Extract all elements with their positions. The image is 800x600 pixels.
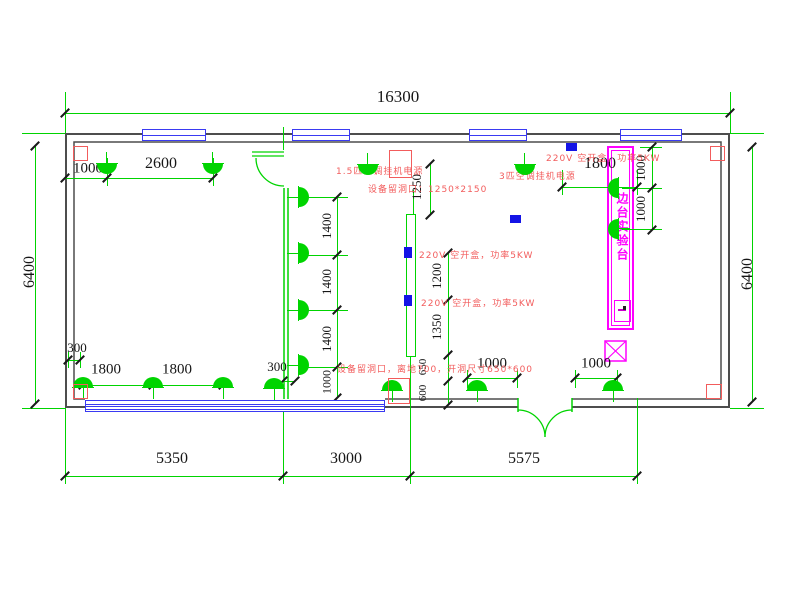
power-box-icon	[404, 247, 412, 258]
dim-label: 1350	[429, 314, 445, 340]
dim-label: 3000	[330, 450, 362, 468]
dim-label: 16300	[377, 87, 420, 107]
window-mullion	[293, 135, 349, 136]
lamp-stem	[153, 387, 154, 399]
red-annotation: 220V 空开盒，功率5KW	[546, 151, 660, 164]
lamp-dome	[299, 355, 309, 375]
faucet-knob	[623, 306, 626, 310]
lamp-icon	[356, 153, 380, 177]
window-mullion	[86, 406, 384, 407]
lamp-icon	[211, 375, 235, 399]
red-annotation: 设备留洞口：1250*2150	[368, 182, 487, 195]
lamp-dome	[608, 178, 618, 198]
lamp-bar	[602, 390, 624, 391]
dim-label: 600	[417, 385, 429, 402]
door-swing-arc	[518, 410, 545, 437]
lamp-bar	[142, 387, 164, 388]
extension-line	[410, 357, 411, 484]
power-box-icon	[404, 295, 412, 306]
door-swing-arc	[256, 158, 284, 186]
dim-label: 1000	[633, 196, 649, 222]
lamp-icon	[95, 152, 119, 176]
window-icon	[620, 129, 682, 141]
lamp-icon	[287, 185, 311, 209]
lamp-dome	[603, 380, 623, 390]
green-bench-outline	[406, 214, 416, 357]
window-mullion	[86, 409, 384, 410]
lamp-stem	[274, 388, 275, 400]
red-annotation: 220V 空开盒，功率5KW	[421, 296, 535, 309]
window-icon	[292, 129, 350, 141]
lamp-stem	[477, 390, 478, 402]
extension-line	[22, 408, 65, 409]
door-opening	[518, 397, 572, 409]
dim-label: 1000	[581, 356, 611, 373]
lamp-dome	[515, 165, 535, 175]
lamp-bar	[212, 387, 234, 388]
dim-line	[65, 178, 213, 179]
extension-line	[730, 133, 764, 134]
dim-label: 5350	[156, 450, 188, 468]
dim-label: 1400	[319, 269, 335, 295]
extension-line	[730, 408, 764, 409]
lamp-stem	[618, 187, 630, 188]
lamp-dome	[299, 300, 309, 320]
red-annotation: 3匹空调挂机电源	[499, 169, 576, 182]
dim-label: 5575	[508, 450, 540, 468]
dim-label: 1400	[319, 326, 335, 352]
dim-label: 1000	[320, 370, 335, 394]
window-mullion	[143, 135, 205, 136]
dim-label: 300	[267, 359, 287, 375]
lamp-stem	[613, 390, 614, 402]
window-icon	[142, 129, 206, 141]
red-annotation: 设备留洞口，离地700，开洞尺寸650*600	[337, 362, 533, 375]
door-swing-arc	[545, 410, 572, 437]
dim-line	[65, 113, 730, 114]
lamp-stem	[618, 228, 630, 229]
lamp-dome	[213, 377, 233, 387]
dim-label: 1800	[162, 362, 192, 379]
red-outline-box	[710, 146, 725, 161]
dim-line	[65, 476, 637, 477]
lamp-dome	[608, 219, 618, 239]
window-icon	[85, 400, 385, 412]
lamp-icon	[262, 376, 286, 400]
dim-label: 1200	[429, 263, 445, 289]
lamp-dome	[299, 187, 309, 207]
lamp-dome	[467, 380, 487, 390]
sink-symbol	[614, 300, 631, 322]
window-mullion	[470, 135, 526, 136]
dim-label: 1800	[91, 362, 121, 379]
lamp-icon	[606, 176, 630, 200]
extension-line	[637, 398, 638, 484]
red-outline-box	[706, 384, 722, 399]
lamp-dome	[97, 164, 117, 174]
lamp-bar	[466, 390, 488, 391]
lamp-icon	[601, 378, 625, 402]
dim-label: 1400	[319, 213, 335, 239]
lamp-bar	[263, 388, 285, 389]
lamp-icon	[287, 353, 311, 377]
power-box-icon	[566, 143, 577, 151]
lamp-icon	[606, 217, 630, 241]
lamp-stem	[223, 387, 224, 399]
extension-line	[283, 400, 284, 484]
red-outline-box	[73, 384, 88, 399]
lamp-bar	[618, 218, 619, 240]
red-annotation: 220V 空开盒，功率5KW	[419, 248, 533, 261]
lamp-dome	[358, 165, 378, 175]
lamp-dome	[143, 377, 163, 387]
extension-line	[283, 127, 284, 150]
lamp-icon	[287, 241, 311, 265]
dim-label: 6400	[21, 256, 39, 288]
power-box-icon	[510, 215, 521, 223]
lamp-icon	[513, 153, 537, 177]
lamp-icon	[287, 298, 311, 322]
dim-label: 300	[67, 340, 87, 356]
lamp-icon	[141, 375, 165, 399]
lamp-dome	[264, 378, 284, 388]
red-outline-box	[388, 378, 410, 404]
floor-plan-canvas: 边台实验台 1630064006400100026001800100010001…	[0, 0, 800, 600]
extension-line	[22, 133, 65, 134]
dim-label: 2600	[145, 155, 177, 173]
lamp-dome	[299, 243, 309, 263]
lamp-dome	[203, 164, 223, 174]
red-outline-box	[73, 146, 88, 161]
lamp-bar	[618, 177, 619, 199]
dim-label: 6400	[739, 258, 757, 290]
lamp-icon	[201, 152, 225, 176]
lamp-icon	[465, 378, 489, 402]
window-mullion	[86, 404, 384, 405]
window-icon	[469, 129, 527, 141]
red-outline-box	[389, 150, 412, 178]
window-mullion	[621, 135, 681, 136]
